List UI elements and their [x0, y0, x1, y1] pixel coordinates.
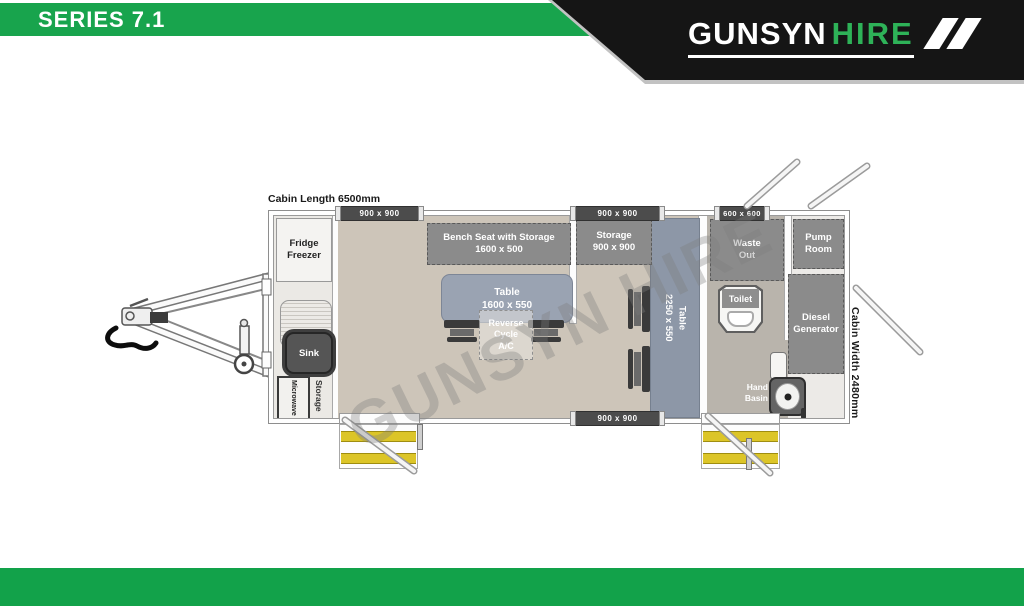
reverse-cycle-ac: Reverse Cycle A/C	[479, 310, 533, 360]
chair	[626, 286, 650, 332]
entry-steps-left	[339, 424, 418, 469]
pump-room: Pump Room	[793, 219, 844, 269]
door-top-middle: 900 x 900	[574, 206, 661, 221]
storage-small-label: Storage	[308, 374, 330, 418]
fridge-freezer: Fridge Freezer	[276, 218, 332, 282]
bench-seat: Bench Seat with Storage 1600 x 500	[427, 223, 571, 265]
door-top-left: 900 x 900	[339, 206, 420, 221]
cabin-interior: Fridge Freezer Sink Microwave Storage Be…	[273, 215, 845, 419]
logo-slashes-icon	[926, 18, 972, 49]
door-opening-right	[701, 413, 780, 424]
sink: Sink	[285, 332, 333, 374]
storage-room: Storage 900 x 900	[576, 219, 652, 265]
chair	[528, 320, 564, 342]
logo-banner: GUNSYNHIRE	[552, 0, 1024, 80]
cistern	[770, 352, 787, 380]
brand-logo: GUNSYNHIRE	[688, 16, 972, 58]
handrail-post	[417, 424, 423, 450]
brand-name-primary: GUNSYN	[688, 16, 827, 51]
trailer-hitch-drawing	[100, 266, 272, 386]
entry-steps-right	[701, 424, 780, 469]
door-bottom: 900 x 900	[574, 411, 661, 426]
hatch-top-right: 600 x 600	[718, 206, 766, 221]
hand-basin-label: Hand Basin	[730, 382, 768, 404]
chair	[444, 320, 480, 342]
chair	[626, 346, 650, 392]
series-label: SERIES 7.1	[0, 7, 165, 33]
toilet: Toilet	[718, 285, 763, 333]
cabin-floorplan: Fridge Freezer Sink Microwave Storage Be…	[268, 210, 850, 424]
cabin-width-label: Cabin Width 2480mm	[849, 307, 861, 427]
table-long: Table 2250 x 550	[650, 218, 700, 418]
handrail-post	[746, 438, 752, 470]
brand-logo-text: GUNSYNHIRE	[688, 16, 914, 58]
hand-basin	[769, 377, 806, 416]
diesel-generator: Diesel Generator	[788, 274, 844, 374]
footer-bar	[0, 568, 1024, 606]
series-banner: SERIES 7.1	[0, 3, 618, 36]
waste-out: Waste Out	[710, 219, 784, 281]
microwave: Microwave	[277, 376, 310, 419]
cabin-length-label: Cabin Length 6500mm	[268, 193, 380, 205]
door-opening-left	[339, 413, 420, 424]
brand-name-secondary: HIRE	[832, 16, 914, 51]
